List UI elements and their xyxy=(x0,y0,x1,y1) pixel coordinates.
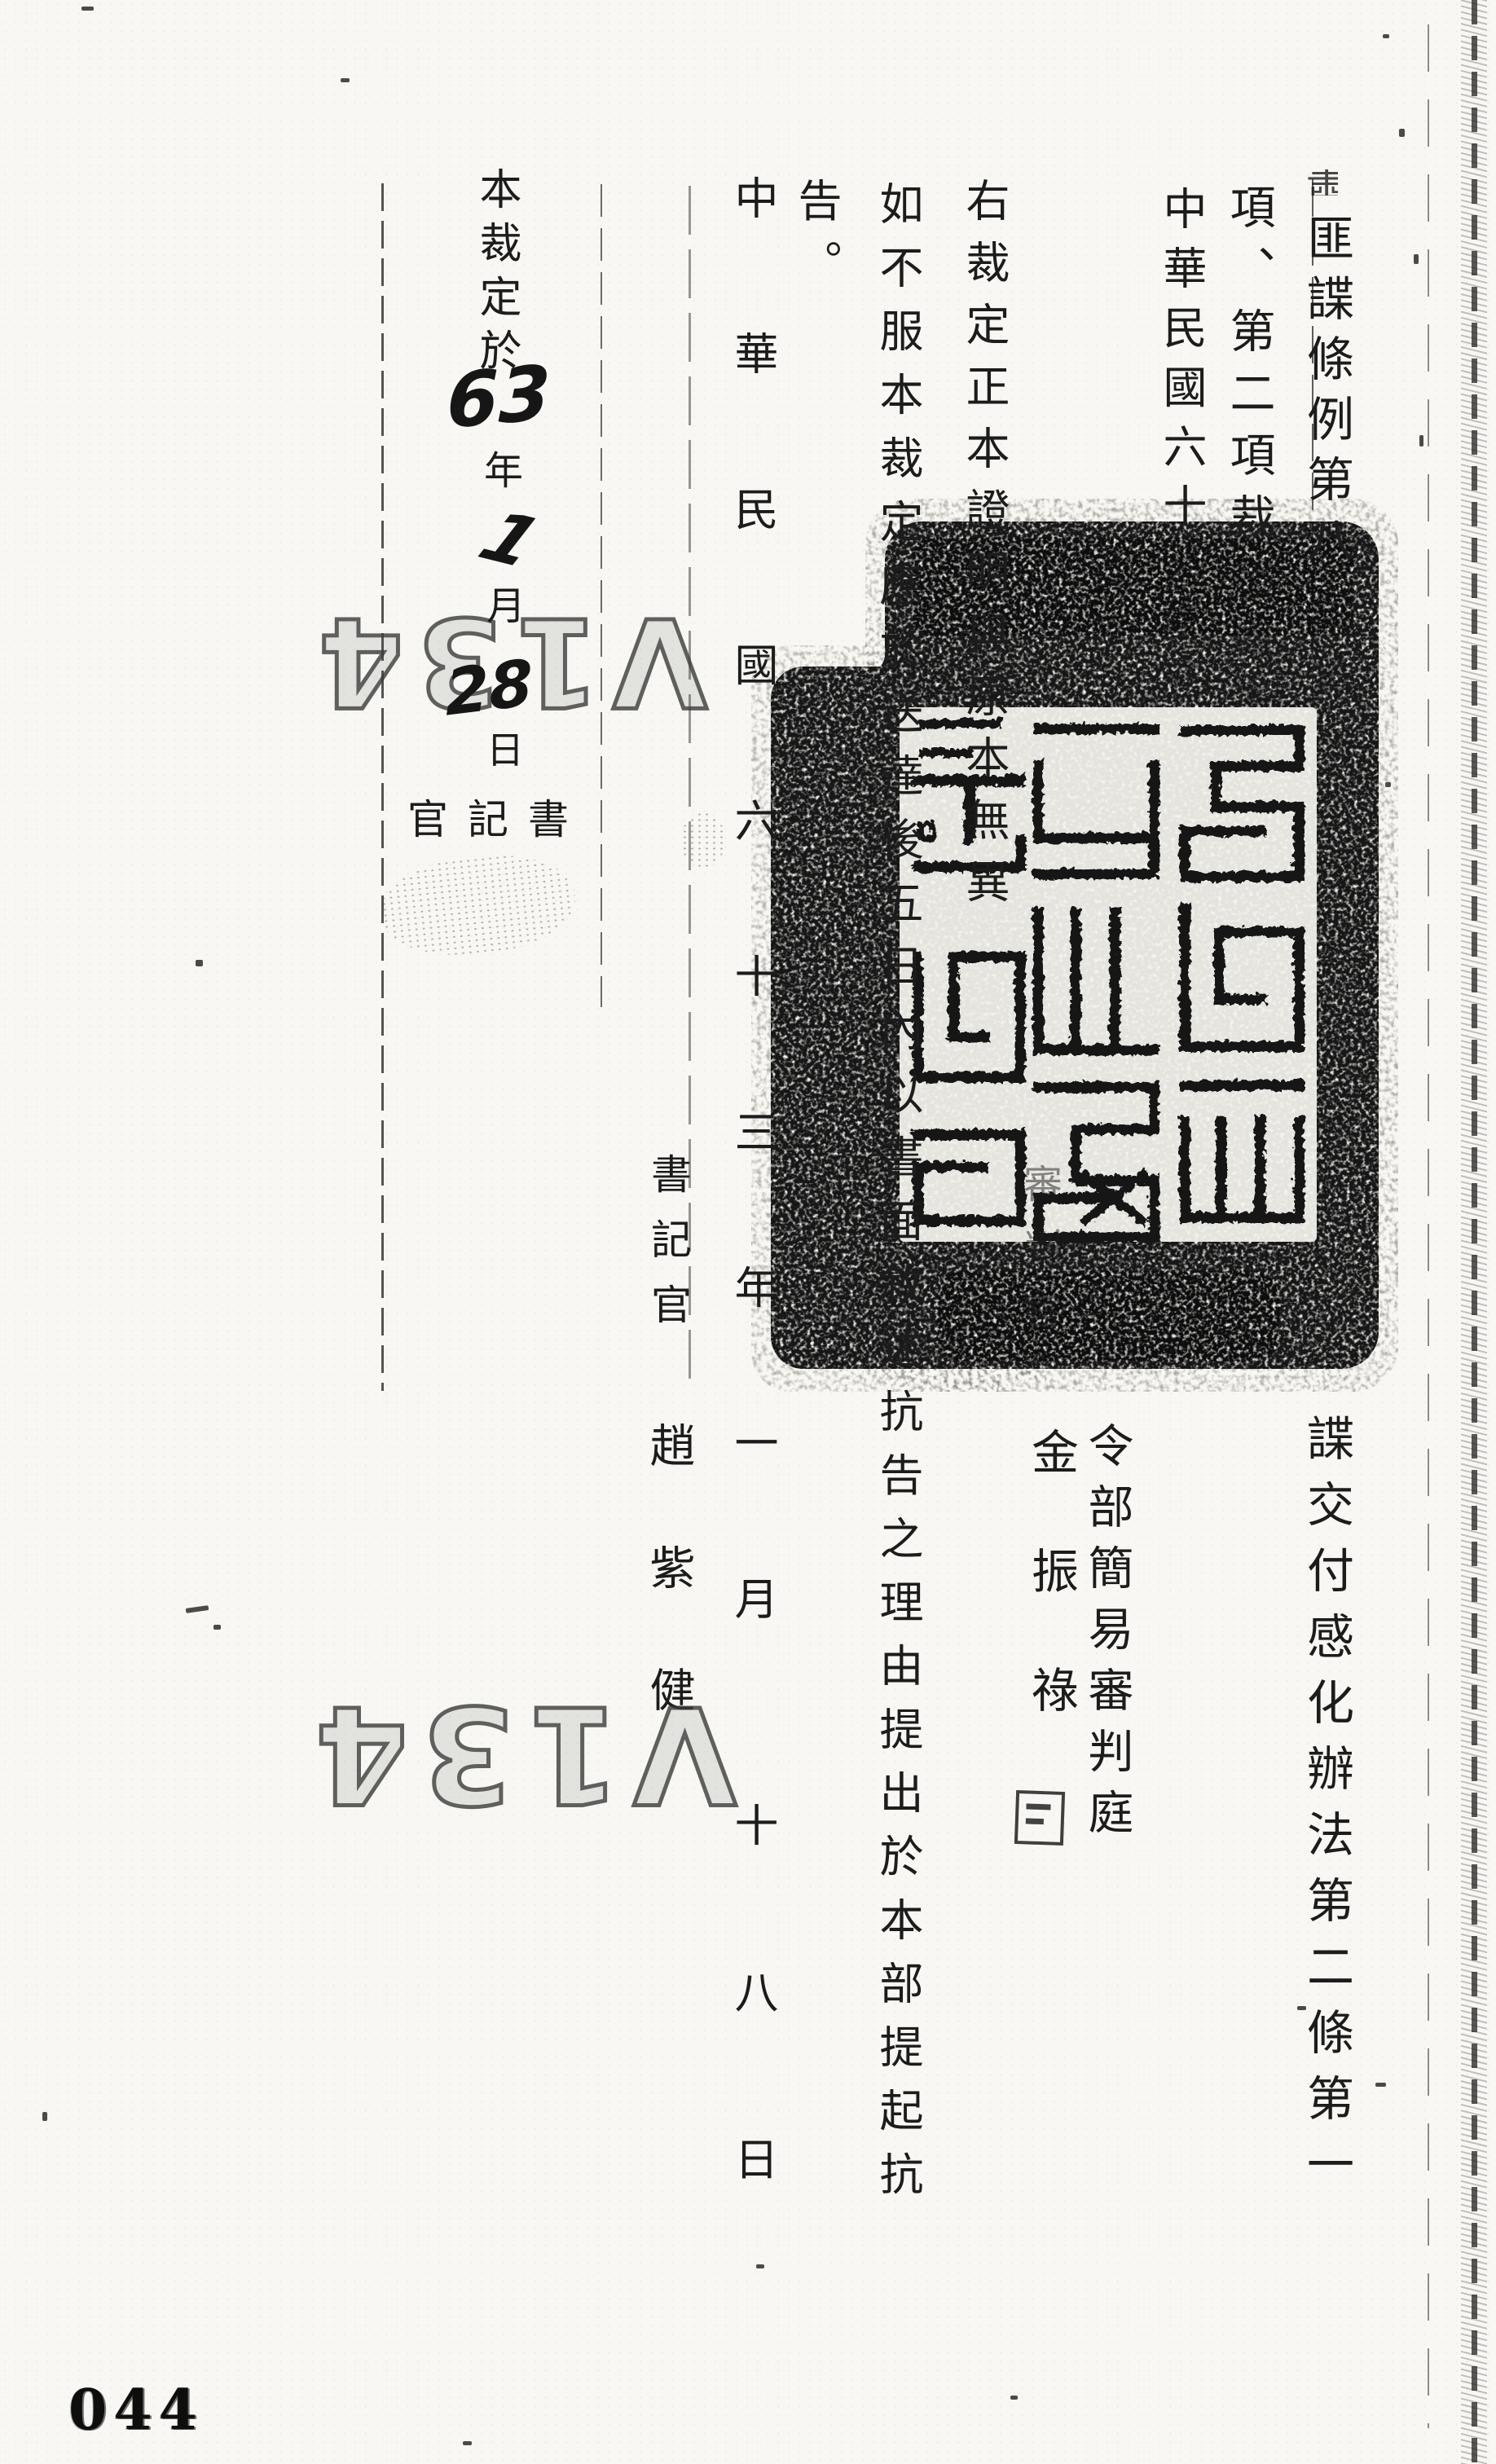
ink-speck xyxy=(1383,34,1389,38)
handwritten-year: 63 xyxy=(446,355,551,440)
service-day-label: 日 xyxy=(476,730,530,768)
ink-speck xyxy=(42,2112,47,2121)
ink-speck xyxy=(1419,435,1423,447)
ink-speck xyxy=(196,960,203,966)
text-col-service-prefix: 本裁定於 xyxy=(466,167,527,382)
ink-speck xyxy=(1385,782,1391,787)
binding-edge-band xyxy=(1472,0,1477,2464)
ink-smudge-patch xyxy=(376,847,579,963)
text-col-cert-date-tail: 十八日 xyxy=(720,1802,785,2303)
ink-speck xyxy=(463,2441,472,2445)
ink-speck xyxy=(1399,129,1405,137)
scanned-document-page: { "document": { "page_number": "044", "r… xyxy=(0,0,1496,2464)
ink-speck xyxy=(186,1605,209,1613)
ink-speck xyxy=(213,1625,221,1630)
file-code-stamp-bottom: V134 xyxy=(329,1661,737,1820)
text-col-cert-date: 中華民國六十三年一月 xyxy=(720,175,785,1731)
handwritten-day: 28 xyxy=(444,651,534,725)
text-col-appeal-notice: 如不服本裁定應於送達後五日內以書面敘述抗告之理由提出於本部提起抗 xyxy=(865,181,930,2215)
ink-smudge-patch-small xyxy=(681,812,725,869)
text-col-certify: 右裁定正本證明與原本無異 xyxy=(952,178,1016,921)
text-col-verdict-hidden: 定如主文。 xyxy=(1216,556,1280,857)
service-clerk-row: 官記書 xyxy=(407,787,588,846)
service-year-label: 年 xyxy=(471,450,528,489)
text-col-citation-hidden: 條第一 xyxy=(1294,598,1360,779)
ink-speck xyxy=(1414,254,1419,264)
column-rule-left xyxy=(381,183,384,1391)
handwritten-month: 1 xyxy=(469,503,551,579)
judge-name-seal xyxy=(1014,1790,1065,1846)
partial-glyph: 肅 xyxy=(1292,168,1338,196)
page-edge-line xyxy=(1428,24,1429,2428)
ink-speck xyxy=(341,78,350,82)
partial-glyph-fragment: 肅 xyxy=(1292,168,1338,196)
text-col-judge-title: 審判官 xyxy=(1010,1164,1067,1354)
text-col-origdate-top: 中華民國六十 xyxy=(1149,186,1213,543)
text-col-verdict-top: 項、第二項裁 xyxy=(1216,183,1282,555)
text-col-citation-bottom: 諜交付感化辦法第二條第一 xyxy=(1292,1414,1361,2206)
text-col-origdate-hidden: 三年元月卅一日 xyxy=(1151,539,1209,961)
text-col-judge-name: 金振祿 xyxy=(1017,1428,1085,1784)
page-number: 044 xyxy=(68,2378,204,2443)
service-month-label: 月 xyxy=(473,585,530,624)
text-col-appeal-notice-wrap: 告。 xyxy=(784,178,848,301)
text-col-citation-top: 匪諜條例第八 xyxy=(1292,213,1361,575)
ink-speck xyxy=(81,7,94,11)
ink-speck xyxy=(1010,2396,1018,2400)
ink-speck xyxy=(1375,2083,1386,2087)
text-col-clerk-title: 書記官 xyxy=(639,1153,697,1349)
